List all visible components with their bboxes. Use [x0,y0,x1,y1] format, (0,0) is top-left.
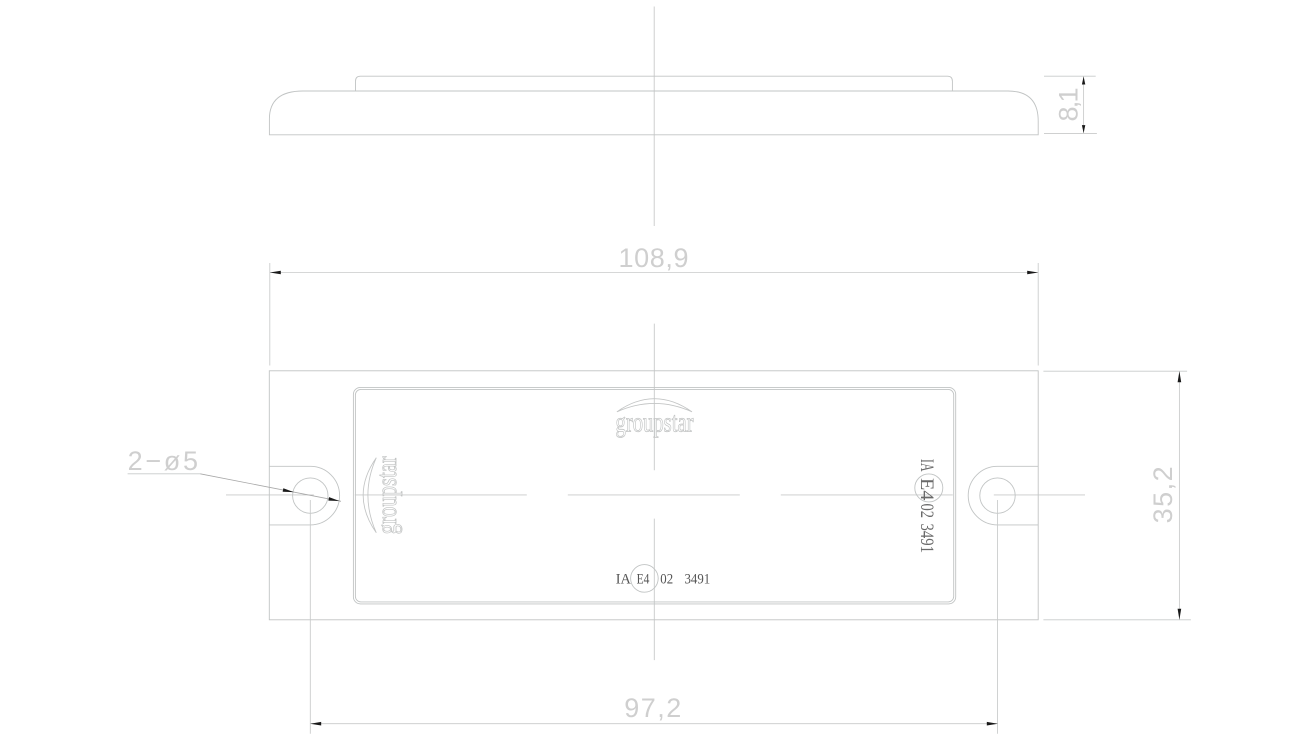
svg-text:97,2: 97,2 [624,693,681,723]
svg-text:02: 02 [660,572,673,588]
svg-text:35,2: 35,2 [1148,466,1178,523]
svg-text:groupstar: groupstar [371,456,403,534]
svg-text:IA: IA [916,459,937,472]
svg-text:groupstar: groupstar [616,407,694,439]
svg-text:IA: IA [616,572,631,588]
svg-text:3491: 3491 [916,524,937,554]
svg-text:108,9: 108,9 [619,243,689,273]
svg-text:8,1: 8,1 [1054,88,1084,122]
svg-text:02: 02 [916,504,937,519]
svg-text:E4: E4 [637,572,650,588]
svg-text:2−ø5: 2−ø5 [128,446,198,476]
svg-text:3491: 3491 [685,572,711,588]
